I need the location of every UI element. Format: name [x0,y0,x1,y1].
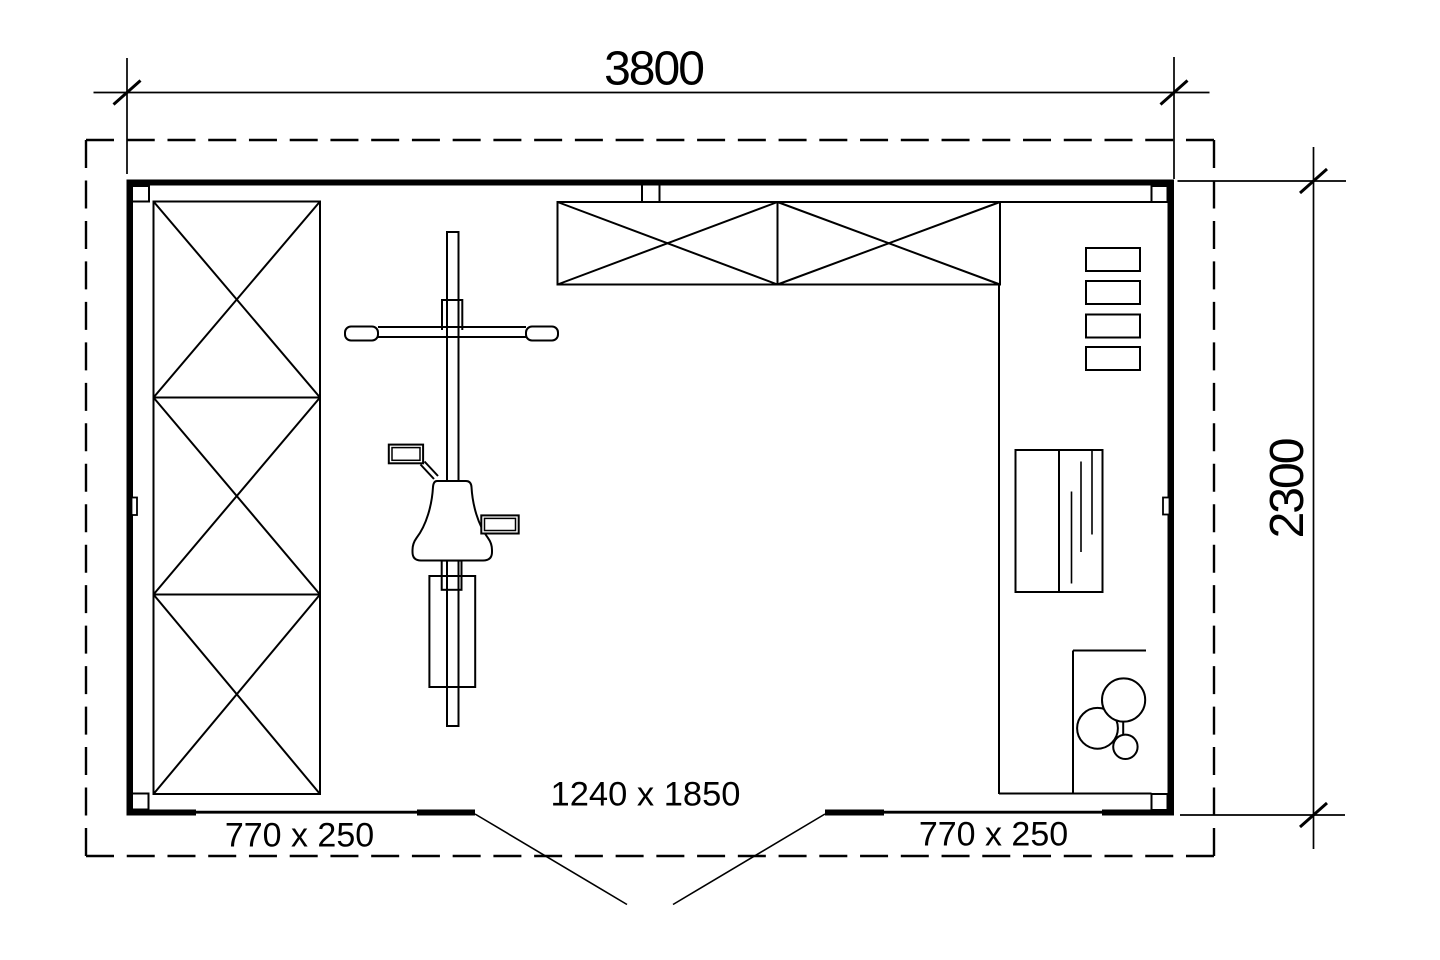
svg-text:2300: 2300 [1261,439,1314,538]
svg-text:770 x 250: 770 x 250 [919,816,1068,854]
svg-text:770 x 250: 770 x 250 [225,817,374,855]
svg-text:1240 x 1850: 1240 x 1850 [551,776,741,814]
svg-text:3800: 3800 [604,43,703,96]
